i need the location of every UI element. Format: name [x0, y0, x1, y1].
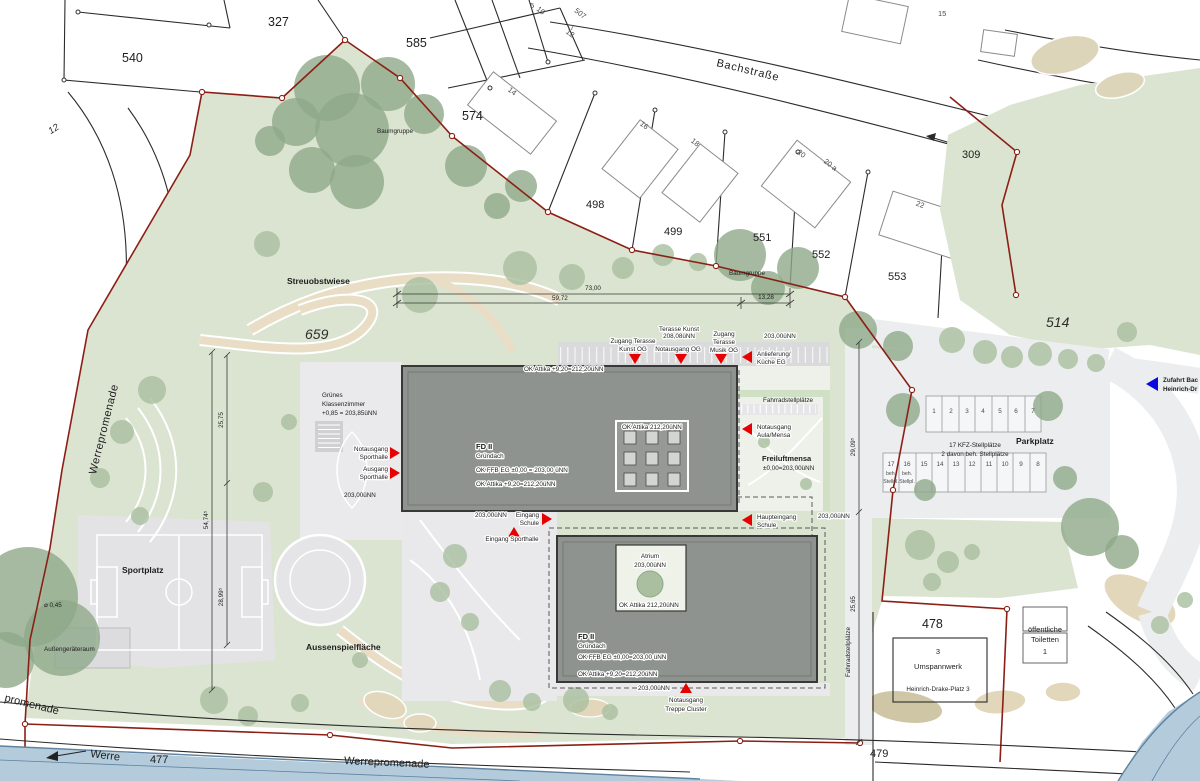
label-anlieferung-1: Anlieferung/ [757, 351, 791, 358]
stall-16: 16 [903, 461, 911, 468]
label-parcel-585: 585 [406, 36, 427, 50]
stall-4: 4 [981, 408, 985, 415]
stall-7: 7 [1031, 408, 1035, 415]
driveway [845, 328, 872, 745]
label-notausgang-og: Notausgang OG [655, 346, 701, 353]
label-level-ne: 203,00üNN [764, 333, 796, 340]
label-ausgang-sporthalle-1: Ausgang [363, 466, 388, 473]
label-ausgang-sporthalle-2: Sporthalle [360, 474, 389, 481]
label-fahrrad-2: Fahrradstellplätze [845, 626, 852, 677]
label-notausgang-sporthalle-2: Sporthalle [360, 454, 389, 461]
stall-15: 15 [920, 461, 928, 468]
site-plan-drawing: 327 540 585 574 498 499 551 552 553 309 … [0, 0, 1200, 781]
label-south-name: FD II [578, 632, 594, 641]
label-terasse-kunst-level: 208,08üNN [663, 333, 695, 340]
play-circle [275, 535, 365, 625]
stall-17-stellpl: Stellpl. [883, 479, 899, 485]
stall-5: 5 [998, 408, 1002, 415]
stall-16-stellpl: Stellpl. [899, 479, 915, 485]
label-dim-2909: 29,09⁵ [850, 437, 857, 456]
label-parcel-574: 574 [462, 109, 483, 123]
label-atrium-level: 203,00üNN [634, 562, 666, 569]
atrium-tree [637, 571, 663, 597]
label-terasse-kunst: Terasse Kunst [659, 326, 699, 333]
label-notausgang-sporthalle-1: Notausgang [354, 446, 388, 453]
label-parcel-551: 551 [753, 232, 771, 244]
label-haupteingang-2: Schule [757, 522, 777, 529]
stall-14: 14 [936, 461, 944, 468]
stall-17-beh: beh. [886, 471, 896, 477]
label-notausgang-aula-1: Notausgang [757, 424, 791, 431]
label-zugang-kunst-1: Zugang Terasse [610, 338, 656, 345]
label-baumgruppe-1: Baumgruppe [377, 128, 414, 135]
label-north-ffb: OK FFB EG ±0,00 = 203,00 üNN [476, 467, 568, 474]
label-dim-2575: 25,75 [218, 412, 225, 428]
label-zufahrt-2: Heinrich-Dr [1163, 386, 1198, 393]
label-south-ffb: OK FFB EG ±0,00=203,00 üNN [578, 654, 667, 661]
label-eingang-schule-1: Eingang [516, 512, 540, 519]
label-level-sw: 203,00üNN [475, 512, 507, 519]
label-parcel-514: 514 [1046, 314, 1070, 330]
label-north-name: FD II [476, 442, 492, 451]
stall-1: 1 [932, 408, 936, 415]
stall-3: 3 [965, 408, 969, 415]
label-level-e: 203,00üNN [818, 513, 850, 520]
stall-9: 9 [1019, 461, 1023, 468]
label-north-attika: OK Attika +9,20=212,20üNN [476, 481, 556, 488]
label-skylight-attika: OK Attika 212,20üNN [622, 424, 682, 431]
stall-17: 17 [887, 461, 895, 468]
label-baumgruppe-2: Baumgruppe [729, 270, 766, 277]
label-zugang-musik-3: Musik OG [710, 347, 738, 354]
label-aussenspielflaeche: Aussenspielfläche [306, 642, 381, 652]
stall-13: 13 [952, 461, 960, 468]
label-eingang-schule-2: Schule [520, 520, 540, 527]
label-kfz-1: 17 KFZ-Stellplätze [949, 442, 1001, 449]
site-plan-page: 327 540 585 574 498 499 551 552 553 309 … [0, 0, 1200, 781]
label-dim-73: 73,00 [585, 285, 601, 292]
label-notausgang-treppe-2: Treppe Cluster [665, 706, 706, 713]
label-notausgang-aula-2: Aula/Mensa [757, 432, 791, 439]
label-south-attika: OK Attika +9,20=212,20üNN [578, 671, 658, 678]
label-freiluftmensa: Freiluftmensa [762, 454, 812, 463]
label-dim-2899: 28,99⁵ [218, 587, 225, 606]
label-parkplatz: Parkplatz [1016, 436, 1054, 446]
stall-10: 10 [1001, 461, 1009, 468]
label-atrium: Atrium [641, 553, 659, 560]
label-parcel-659: 659 [305, 326, 329, 342]
label-parcel-499: 499 [664, 226, 682, 238]
label-house-15: 15 [938, 9, 946, 18]
label-streuobstwiese: Streuobstwiese [287, 276, 350, 286]
label-umspannwerk-2: Umspannwerk [914, 662, 962, 671]
label-dim-2565: 25,65 [850, 596, 857, 612]
label-haupteingang-1: Haupteingang [757, 514, 797, 521]
label-parcel-498: 498 [586, 199, 604, 211]
label-parcel-479: 479 [870, 748, 888, 760]
skylight-grid [616, 421, 688, 491]
label-north-attika-top: OK Attika +9,20=212,20üNN [524, 366, 604, 373]
label-aussengeraeteraum: Außengeräteraum [44, 646, 95, 653]
label-dim-59: 59,72 [552, 295, 568, 302]
stall-2: 2 [949, 408, 953, 415]
label-parcel-327: 327 [268, 15, 289, 29]
label-level-w: 203,00üNN [344, 492, 376, 499]
label-dim-13: 13,28 [758, 294, 774, 301]
label-dim-5474: 54,74⁵ [203, 510, 210, 529]
stall-6: 6 [1014, 408, 1018, 415]
label-zufahrt-1: Zufahrt Bac [1163, 377, 1198, 384]
label-parcel-309: 309 [962, 149, 980, 161]
label-level-s: 203,00üNN [638, 685, 670, 692]
label-umspannwerk-1: 3 [936, 647, 940, 656]
stall-16-beh: beh. [902, 471, 912, 477]
stall-12: 12 [968, 461, 976, 468]
label-toiletten-2: Toiletten [1031, 635, 1059, 644]
label-toiletten-1: öffentliche [1028, 625, 1062, 634]
label-parcel-478: 478 [922, 617, 943, 631]
label-gruenes-2: Klassenzimmer [322, 401, 365, 408]
label-anlieferung-2: Küche EG [757, 359, 786, 366]
label-parcel-552: 552 [812, 249, 830, 261]
label-kfz-2: 2 davon beh. Stellplätze [941, 451, 1009, 458]
label-zugang-kunst-2: Kunst OG [619, 346, 647, 353]
stall-8: 8 [1036, 461, 1040, 468]
label-house-5: 5 [530, 1, 534, 10]
label-gruenes-1: Grünes [322, 392, 343, 399]
label-zugang-musik-2: Terasse [713, 339, 736, 346]
label-atrium-attika: OK Attika 212,20üNN [619, 602, 679, 609]
label-toiletten-3: 1 [1043, 647, 1047, 656]
label-zugang-musik-1: Zugang [713, 331, 735, 338]
label-gruenes-3: +0,85 = 203,85üNN [322, 410, 377, 417]
label-parcel-553: 553 [888, 271, 906, 283]
label-sportplatz: Sportplatz [122, 565, 164, 575]
label-freiluftmensa-level: ±0,00=203,00üNN [763, 465, 815, 472]
house-15 [981, 30, 1018, 57]
label-eingang-sporthalle: Eingang Sporthalle [485, 536, 539, 543]
label-parcel-477: 477 [150, 754, 168, 766]
label-umspannwerk-3: Heinrich-Drake-Platz 3 [906, 686, 970, 693]
label-fahrrad-1: Fahrradstellplätze [763, 397, 814, 404]
label-durchmesser: ⌀ 0,45 [44, 602, 62, 609]
label-notausgang-treppe-1: Notausgang [669, 697, 703, 704]
label-north-roof: Gründach [476, 453, 504, 460]
school-building-north [402, 366, 737, 511]
label-south-roof: Gründach [578, 643, 606, 650]
stall-11: 11 [986, 461, 993, 468]
label-parcel-540: 540 [122, 51, 143, 65]
